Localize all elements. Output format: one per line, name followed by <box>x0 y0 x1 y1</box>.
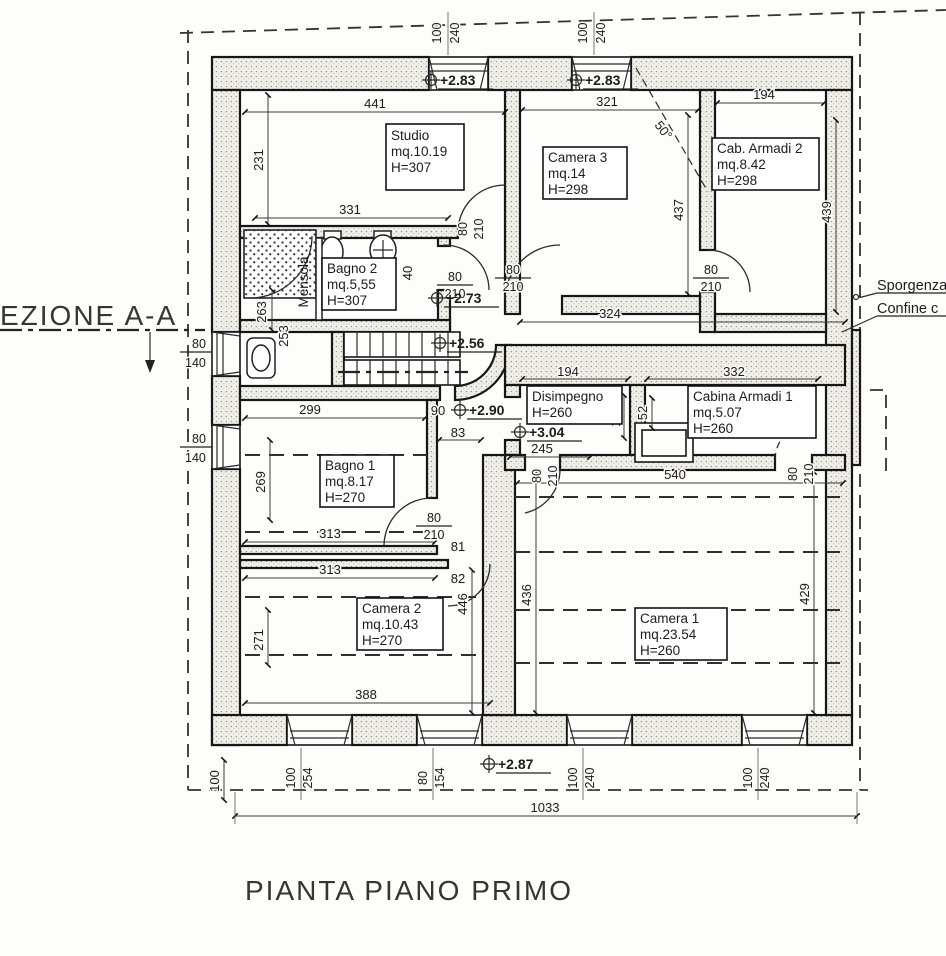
svg-text:H=260: H=260 <box>640 643 680 658</box>
svg-text:H=298: H=298 <box>717 173 757 188</box>
dim-label: 271 <box>251 629 266 651</box>
sporgenza-label: Sporgenza <box>877 278 946 294</box>
svg-text:H=270: H=270 <box>325 490 365 505</box>
dim-label: 313 <box>319 562 341 577</box>
mensola-label: Mensola <box>296 256 311 308</box>
window-bottom-3 <box>567 715 632 745</box>
room-label-bagno2: Bagno 2 mq.5,55 H=307 <box>322 258 396 310</box>
room-label-disimpegno: Disimpegno H=260 <box>527 386 622 424</box>
svg-text:mq.23.54: mq.23.54 <box>640 627 697 642</box>
window-size: 100 <box>741 768 755 789</box>
room-label-camera1: Camera 1 mq.23.54 H=260 <box>635 608 727 660</box>
window-size: 140 <box>185 451 206 465</box>
svg-text:mq.5.07: mq.5.07 <box>693 405 742 420</box>
section-label: EZIONE A-A <box>0 300 177 331</box>
dim-label: 437 <box>671 199 686 221</box>
room-label-camera3: Camera 3 mq.14 H=298 <box>543 147 627 199</box>
door-size: 80 <box>506 263 520 277</box>
dim-label: 439 <box>819 201 834 223</box>
dim-label: 540 <box>664 467 686 482</box>
svg-text:Bagno 1: Bagno 1 <box>325 458 375 473</box>
svg-text:Camera 3: Camera 3 <box>548 150 607 165</box>
window-left-2 <box>212 425 240 469</box>
dim-label: 441 <box>364 96 386 111</box>
room-label-cab-armadi-2: Cab. Armadi 2 mq.8.42 H=298 <box>712 138 819 190</box>
dim-label: 245 <box>531 441 553 456</box>
section-line: EZIONE A-A <box>0 300 205 373</box>
dim-label: 231 <box>251 149 266 171</box>
door-size: 210 <box>546 466 560 487</box>
svg-text:H=260: H=260 <box>532 405 572 420</box>
sheet-title: PIANTA PIANO PRIMO <box>245 875 573 906</box>
room-label-camera2: Camera 2 mq.10.43 H=270 <box>357 598 443 650</box>
svg-text:H=260: H=260 <box>693 421 733 436</box>
window-size: 80 <box>192 337 206 351</box>
window-size: 140 <box>185 356 206 370</box>
mensola-shelf <box>316 238 322 320</box>
window-size: 100 <box>566 768 580 789</box>
window-size: 254 <box>301 768 315 789</box>
level-value: +2.90 <box>469 402 505 418</box>
sporgenza-projection <box>852 330 860 465</box>
window-size: 100 <box>430 23 444 44</box>
window-size: 100 <box>576 23 590 44</box>
dim-label: 436 <box>519 584 534 606</box>
dim-label: 269 <box>253 471 268 493</box>
washbasin <box>252 345 270 371</box>
dim-label: 82 <box>451 571 465 586</box>
svg-text:mq.10.19: mq.10.19 <box>391 144 447 159</box>
svg-text:Bagno 2: Bagno 2 <box>327 261 377 276</box>
svg-text:H=270: H=270 <box>362 633 402 648</box>
window-left-1 <box>212 332 240 376</box>
dim-label: 40 <box>400 266 415 280</box>
level-marker-icon <box>451 401 469 419</box>
level-value: +2.87 <box>498 756 534 772</box>
floor-plan-drawing: EZIONE A-A <box>0 0 946 956</box>
dim-label: 324 <box>599 306 621 321</box>
room-label-bagno1: Bagno 1 mq.8.17 H=270 <box>320 455 394 507</box>
dim-label: 332 <box>723 364 745 379</box>
section-arrow-icon <box>145 360 155 373</box>
svg-text:mq.5,55: mq.5,55 <box>327 277 376 292</box>
window-size: 240 <box>583 768 597 789</box>
door-size: 80 <box>704 263 718 277</box>
svg-text:mq.14: mq.14 <box>548 166 586 181</box>
dim-label: 194 <box>753 87 775 102</box>
dim-label: 429 <box>797 583 812 605</box>
level-marker-icon <box>480 755 498 773</box>
door-size: 210 <box>424 528 445 542</box>
level-value: +2.83 <box>440 72 476 88</box>
svg-text:H=307: H=307 <box>327 293 367 308</box>
dim-label: 446 <box>455 593 470 615</box>
room-label-cabina-armadi-1: Cabina Armadi 1 mq.5.07 H=260 <box>688 386 816 438</box>
door-size: 80 <box>456 222 470 236</box>
svg-text:Cab. Armadi 2: Cab. Armadi 2 <box>717 141 803 156</box>
svg-text:mq.8.42: mq.8.42 <box>717 157 766 172</box>
svg-text:mq.8.17: mq.8.17 <box>325 474 374 489</box>
level-marker-icon <box>511 423 529 441</box>
dim-label: 100 <box>207 770 222 792</box>
door-size: 210 <box>472 219 486 240</box>
dim-label: 194 <box>557 364 579 379</box>
window-size: 80 <box>192 432 206 446</box>
dim-label: 263 <box>254 301 269 323</box>
svg-text:Studio: Studio <box>391 128 429 143</box>
door-size: 210 <box>503 280 524 294</box>
boundary-annotations: Sporgenza Confine c <box>842 278 946 332</box>
floor-plan-sheet: EZIONE A-A <box>0 0 946 956</box>
dim-label: 331 <box>339 202 361 217</box>
dim-label: 1033 <box>531 800 560 815</box>
room-label-studio: Studio mq.10.19 H=307 <box>386 124 464 190</box>
window-size: 240 <box>758 768 772 789</box>
dim-label: 313 <box>319 526 341 541</box>
dim-label: 52 <box>635 406 650 420</box>
confine-label: Confine c <box>877 301 938 317</box>
dim-label: 90 <box>431 403 445 418</box>
svg-text:Disimpegno: Disimpegno <box>532 389 603 404</box>
door-size: 80 <box>530 469 544 483</box>
level-value: +2.73 <box>446 290 482 306</box>
svg-text:Camera 1: Camera 1 <box>640 611 699 626</box>
dim-label: 83 <box>451 425 465 440</box>
door-size: 80 <box>427 511 441 525</box>
window-bottom-2 <box>417 715 482 745</box>
window-size: 154 <box>433 768 447 789</box>
door-size: 210 <box>701 280 722 294</box>
window-size: 80 <box>416 771 430 785</box>
window-size: 100 <box>284 768 298 789</box>
window-bottom-4 <box>742 715 807 745</box>
level-value: +3.04 <box>529 424 565 440</box>
dim-label: 253 <box>276 325 291 347</box>
dim-label: 81 <box>451 539 465 554</box>
svg-text:H=298: H=298 <box>548 182 588 197</box>
svg-text:Camera 2: Camera 2 <box>362 601 421 616</box>
dim-label: 388 <box>355 687 377 702</box>
level-value: +2.83 <box>585 72 621 88</box>
svg-text:Cabina Armadi 1: Cabina Armadi 1 <box>693 389 793 404</box>
door-size: 80 <box>786 467 800 481</box>
svg-text:mq.10.43: mq.10.43 <box>362 617 418 632</box>
dim-label: 321 <box>596 94 618 109</box>
window-size: 240 <box>594 23 608 44</box>
door-size: 80 <box>448 270 462 284</box>
svg-text:H=307: H=307 <box>391 160 431 175</box>
window-bottom-1 <box>287 715 352 745</box>
angle-label: 50° <box>652 118 676 143</box>
door-size: 210 <box>802 464 816 485</box>
dim-label: 299 <box>299 402 321 417</box>
level-value: +2.56 <box>449 335 485 351</box>
window-size: 240 <box>448 23 462 44</box>
